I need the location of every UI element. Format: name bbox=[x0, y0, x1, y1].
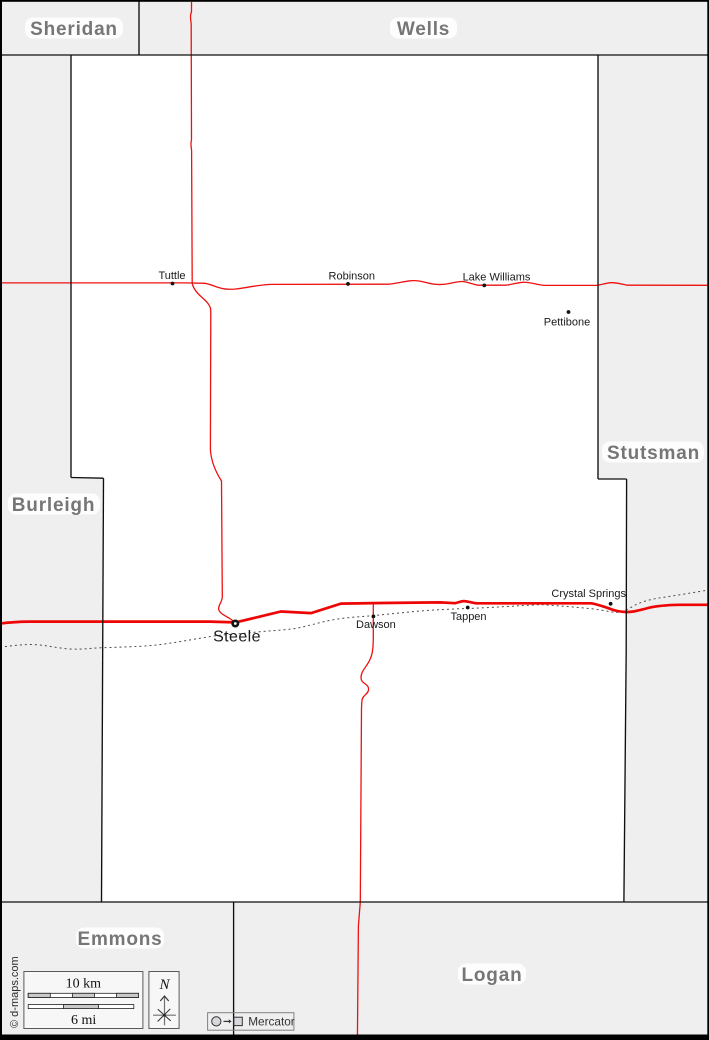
svg-text:Stutsman: Stutsman bbox=[607, 443, 700, 464]
svg-text:Logan: Logan bbox=[462, 965, 523, 986]
svg-text:Lake Williams: Lake Williams bbox=[463, 272, 531, 284]
svg-text:Crystal Springs: Crystal Springs bbox=[551, 588, 626, 600]
svg-text:Dawson: Dawson bbox=[356, 619, 396, 631]
svg-text:Sheridan: Sheridan bbox=[30, 19, 118, 40]
svg-text:6 mi: 6 mi bbox=[71, 1013, 96, 1028]
svg-text:Tappen: Tappen bbox=[450, 611, 486, 623]
svg-text:N: N bbox=[158, 977, 170, 993]
svg-text:© d-maps.com: © d-maps.com bbox=[9, 956, 21, 1028]
svg-text:Wells: Wells bbox=[397, 19, 450, 40]
svg-text:Pettibone: Pettibone bbox=[544, 317, 590, 329]
svg-text:Tuttle: Tuttle bbox=[158, 270, 185, 282]
svg-text:Mercator: Mercator bbox=[248, 1015, 295, 1029]
svg-text:Burleigh: Burleigh bbox=[12, 495, 95, 516]
svg-text:Emmons: Emmons bbox=[77, 929, 162, 950]
svg-text:Steele: Steele bbox=[213, 628, 261, 645]
svg-text:Robinson: Robinson bbox=[329, 270, 375, 282]
svg-text:10 km: 10 km bbox=[66, 977, 102, 992]
